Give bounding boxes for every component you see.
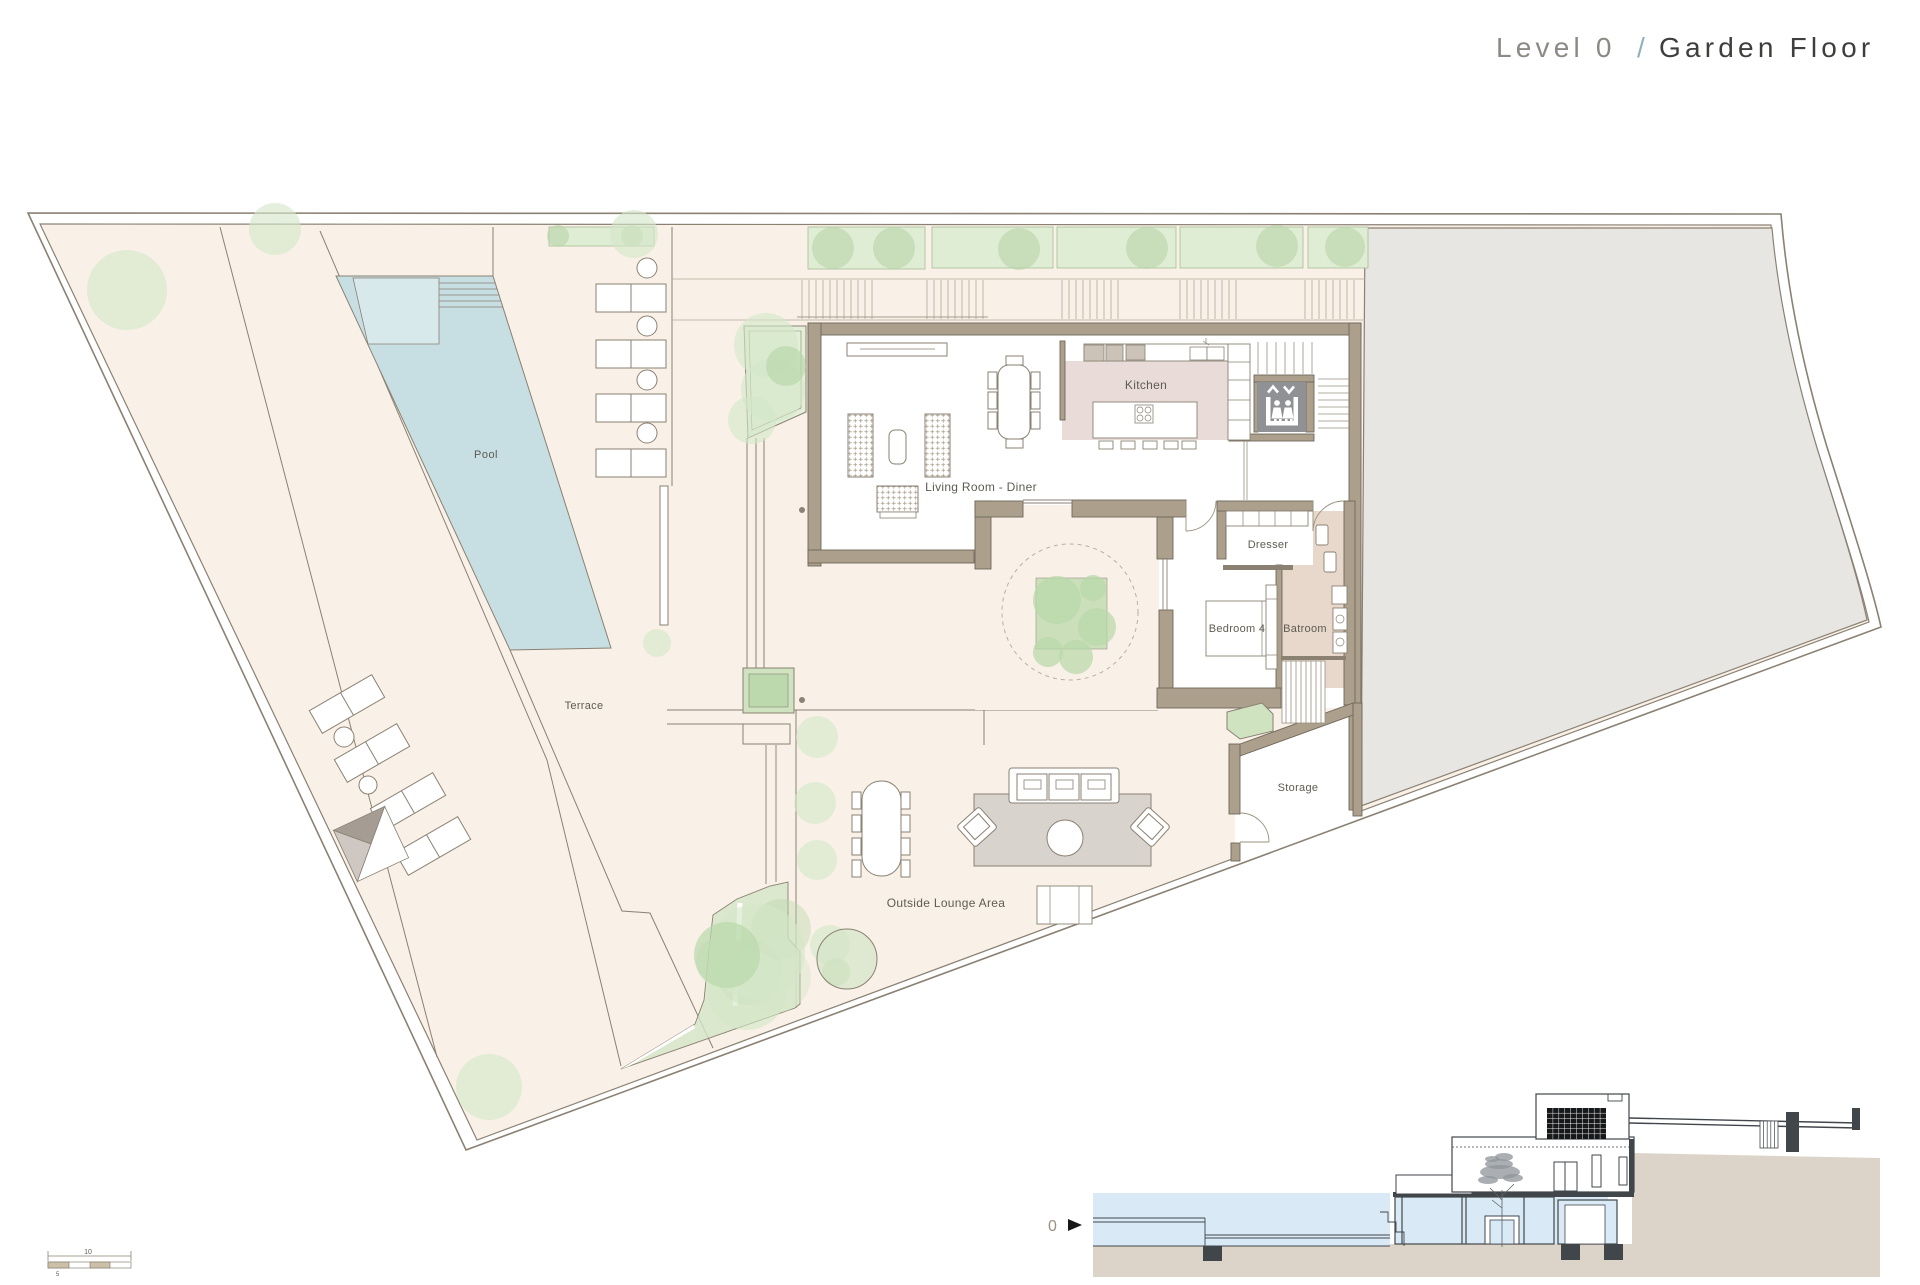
svg-text:Pool: Pool (474, 449, 498, 461)
svg-text:Batroom: Batroom (1283, 623, 1327, 635)
svg-text:Kitchen: Kitchen (1125, 378, 1167, 392)
svg-text:Storage: Storage (1278, 782, 1319, 794)
svg-text:Outside Lounge Area: Outside Lounge Area (887, 896, 1005, 910)
svg-text:Bedroom 4: Bedroom 4 (1209, 623, 1266, 635)
svg-text:/: / (1637, 32, 1649, 63)
svg-text:Terrace: Terrace (565, 700, 604, 712)
svg-text:Living Room - Diner: Living Room - Diner (925, 480, 1037, 494)
svg-text:Dresser: Dresser (1248, 539, 1289, 551)
svg-text:5: 5 (56, 1272, 60, 1278)
svg-text:10: 10 (84, 1249, 92, 1256)
svg-text:0: 0 (1048, 1218, 1057, 1235)
svg-text:Garden Floor: Garden Floor (1659, 32, 1874, 63)
svg-text:Level 0: Level 0 (1496, 32, 1616, 63)
